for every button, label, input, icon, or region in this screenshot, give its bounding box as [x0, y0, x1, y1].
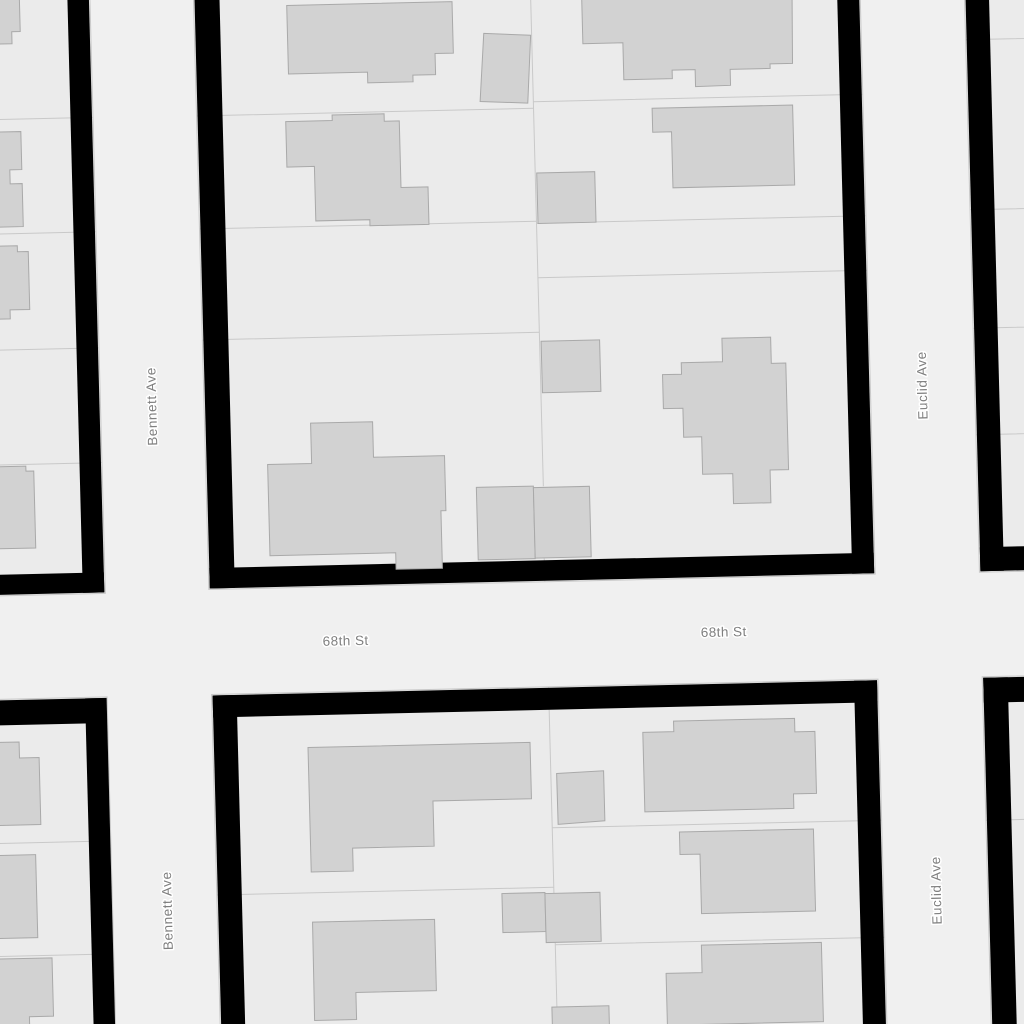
svg-text:68th St: 68th St: [701, 624, 747, 640]
svg-text:Bennett Ave: Bennett Ave: [143, 367, 160, 446]
svg-text:68th St: 68th St: [322, 633, 368, 649]
svg-text:Bennett Ave: Bennett Ave: [159, 871, 176, 950]
svg-text:Euclid Ave: Euclid Ave: [914, 351, 931, 420]
svg-text:Euclid Ave: Euclid Ave: [928, 856, 945, 925]
